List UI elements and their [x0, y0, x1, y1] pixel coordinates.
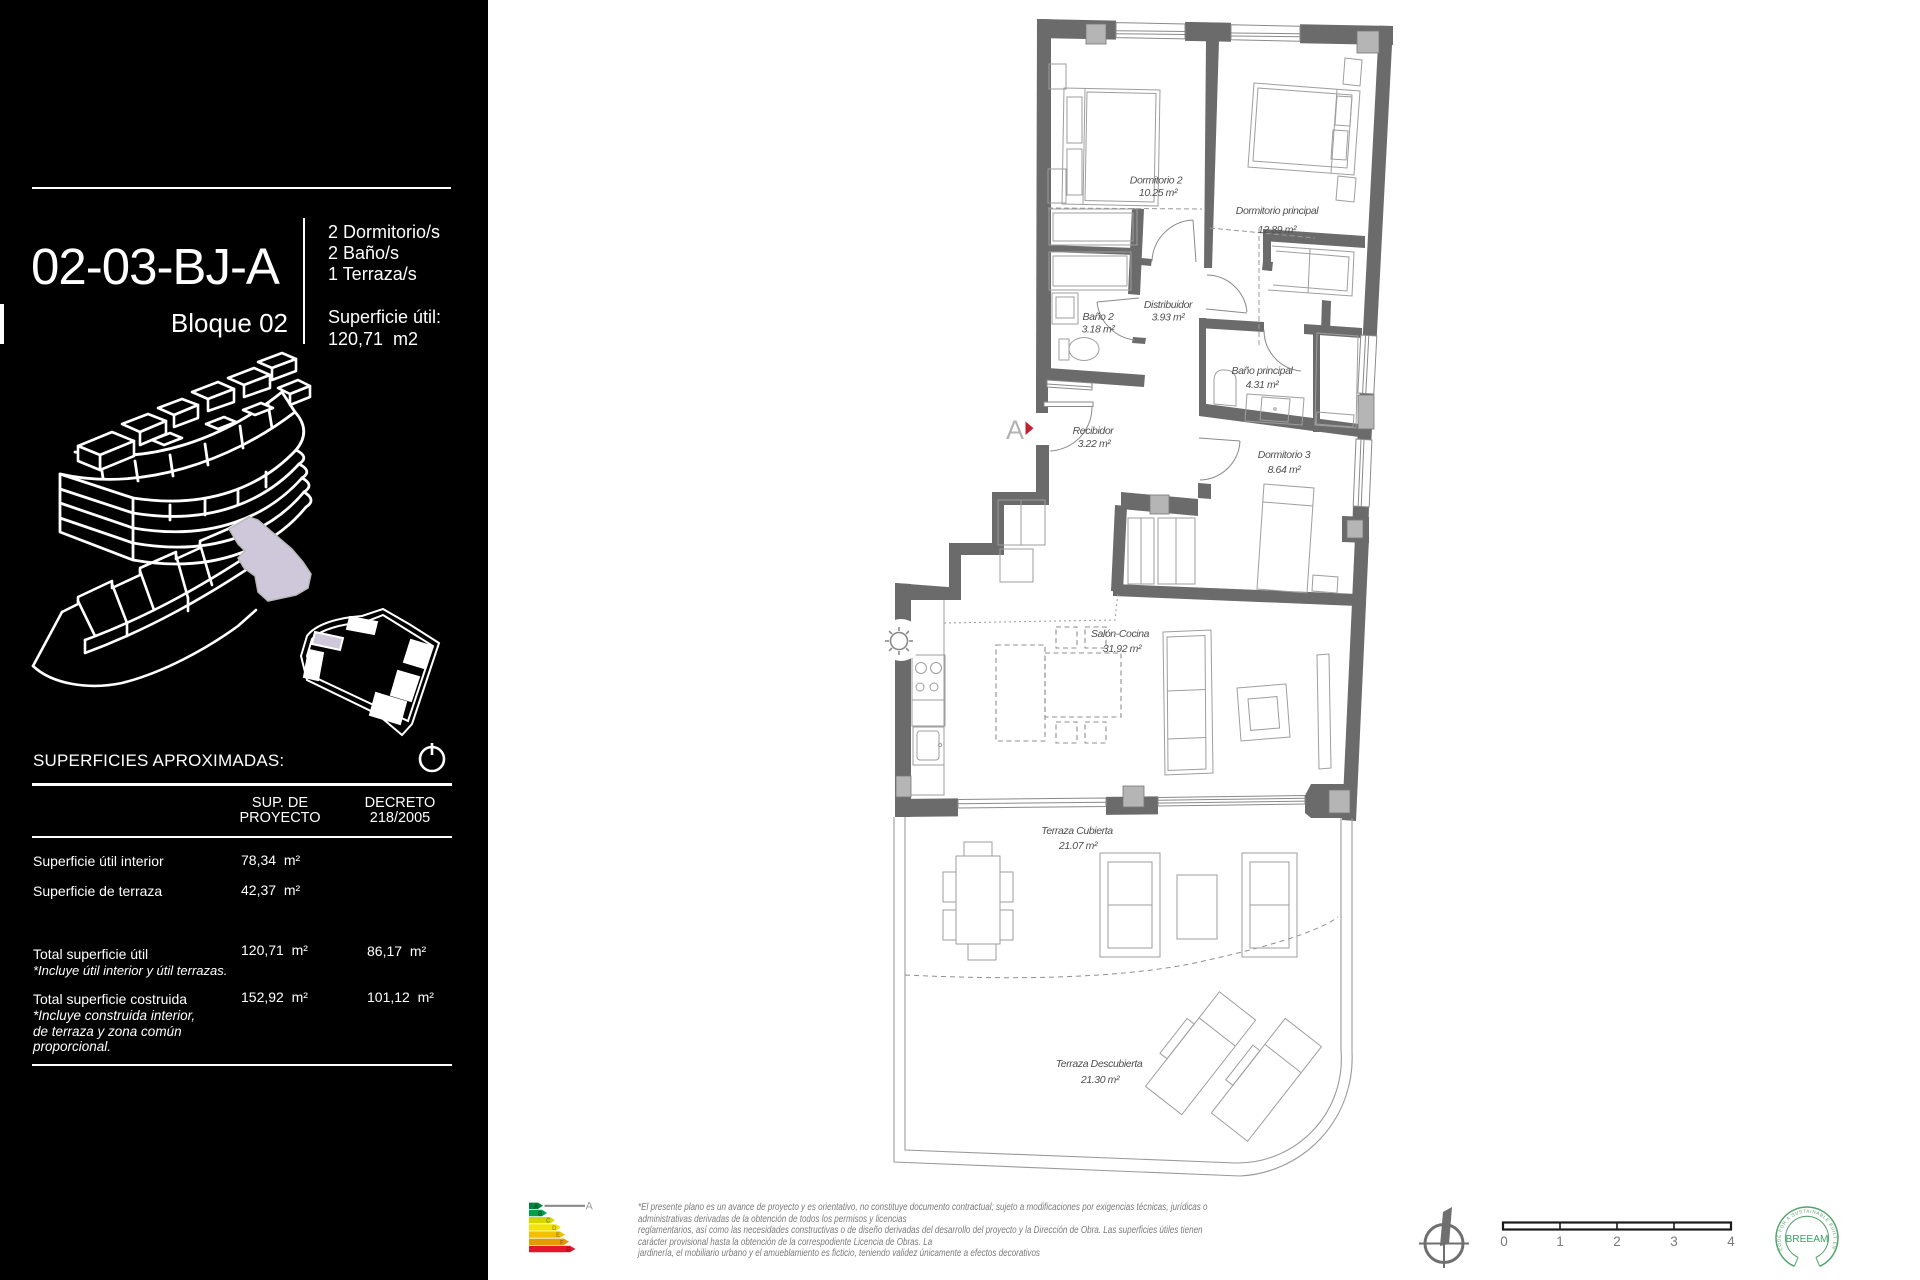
- svg-text:10.25 m²: 10.25 m²: [1139, 187, 1178, 199]
- svg-text:Recibidor: Recibidor: [1073, 425, 1115, 437]
- svg-text:Terraza Cubierta: Terraza Cubierta: [1041, 825, 1113, 837]
- svg-text:A: A: [1006, 415, 1024, 445]
- svg-text:D: D: [552, 1226, 557, 1232]
- svg-text:31.92 m²: 31.92 m²: [1103, 643, 1142, 655]
- svg-text:Dormitorio principal: Dormitorio principal: [1236, 205, 1320, 217]
- svg-text:4: 4: [1727, 1234, 1735, 1249]
- svg-text:Terraza Descubierta: Terraza Descubierta: [1056, 1058, 1143, 1070]
- svg-text:1: 1: [1556, 1234, 1564, 1249]
- svg-text:C: C: [546, 1219, 551, 1225]
- svg-text:0: 0: [1500, 1234, 1508, 1249]
- svg-text:2: 2: [1613, 1234, 1621, 1249]
- svg-text:F: F: [560, 1240, 564, 1246]
- svg-text:21.07 m²: 21.07 m²: [1058, 840, 1098, 852]
- svg-text:Baño principal: Baño principal: [1232, 365, 1294, 377]
- svg-text:3: 3: [1670, 1234, 1678, 1249]
- svg-text:12.89 m²: 12.89 m²: [1258, 224, 1297, 236]
- svg-text:Baño 2: Baño 2: [1083, 311, 1114, 323]
- svg-text:4.31 m²: 4.31 m²: [1246, 379, 1280, 391]
- svg-text:Dormitorio 3: Dormitorio 3: [1258, 449, 1311, 461]
- svg-text:A: A: [534, 1204, 539, 1210]
- svg-text:Distribuidor: Distribuidor: [1144, 299, 1193, 311]
- svg-text:CODE FOR A SUSTAINABLE BUILT E: CODE FOR A SUSTAINABLE BUILT ENVIRONMENT: [0, 0, 1838, 1251]
- svg-text:G: G: [566, 1248, 571, 1254]
- svg-text:B: B: [538, 1212, 543, 1218]
- svg-text:8.64 m²: 8.64 m²: [1268, 464, 1302, 476]
- svg-text:3.93 m²: 3.93 m²: [1152, 312, 1186, 324]
- svg-text:3.18 m²: 3.18 m²: [1082, 324, 1116, 336]
- svg-text:21.30 m²: 21.30 m²: [1080, 1074, 1120, 1086]
- svg-text:Dormitorio 2: Dormitorio 2: [1130, 175, 1183, 187]
- svg-text:BREEAM: BREEAM: [1785, 1234, 1828, 1245]
- svg-text:Salón-Cocina: Salón-Cocina: [1091, 628, 1150, 640]
- svg-text:E: E: [556, 1233, 560, 1239]
- svg-text:3.22 m²: 3.22 m²: [1078, 438, 1112, 450]
- svg-text:A: A: [586, 1201, 594, 1213]
